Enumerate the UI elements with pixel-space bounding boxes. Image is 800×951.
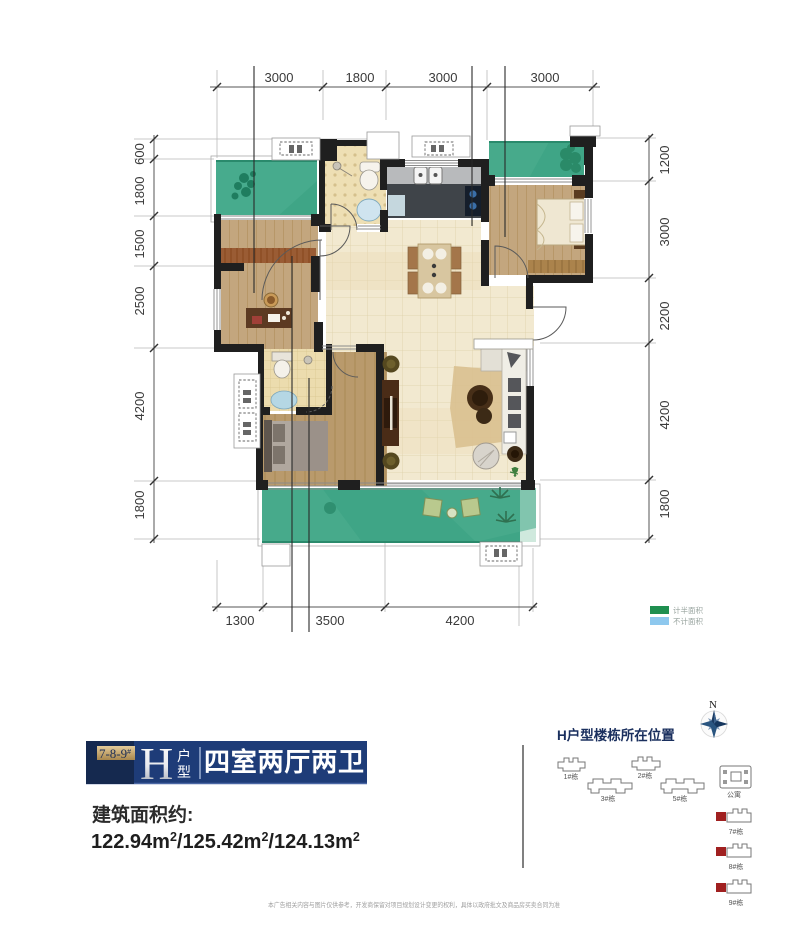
svg-text:本广告相关内容与图片仅供参考，开发商保留对项目规划设计变更的: 本广告相关内容与图片仅供参考，开发商保留对项目规划设计变更的权利，具体以政府批文…	[268, 900, 560, 909]
svg-text:8#栋: 8#栋	[729, 862, 744, 871]
svg-text:H户型楼栋所在位置: H户型楼栋所在位置	[557, 727, 675, 743]
svg-text:建筑面积约:: 建筑面积约:	[92, 803, 193, 826]
svg-text:四室两厅两卫: 四室两厅两卫	[204, 747, 365, 777]
svg-text:600: 600	[132, 143, 147, 165]
svg-text:1#栋: 1#栋	[564, 772, 579, 781]
svg-text:4200: 4200	[446, 613, 475, 628]
svg-text:不计面积: 不计面积	[673, 616, 703, 626]
svg-text:1800: 1800	[132, 491, 147, 520]
svg-text:4200: 4200	[132, 392, 147, 421]
svg-text:1800: 1800	[132, 177, 147, 206]
svg-text:7#栋: 7#栋	[729, 827, 744, 836]
svg-text:3000: 3000	[657, 218, 672, 247]
svg-text:公寓: 公寓	[727, 790, 741, 799]
svg-text:N: N	[709, 699, 717, 711]
svg-text:1500: 1500	[132, 230, 147, 259]
svg-text:3000: 3000	[531, 70, 560, 85]
svg-text:计半面积: 计半面积	[673, 605, 703, 615]
svg-text:9#栋: 9#栋	[729, 898, 744, 907]
svg-text:122.94m2/125.42m2/124.13m2: 122.94m2/125.42m2/124.13m2	[91, 830, 360, 853]
svg-text:7-8-9#: 7-8-9#	[99, 746, 131, 761]
svg-text:型: 型	[177, 765, 191, 781]
svg-text:H: H	[140, 738, 173, 789]
svg-text:2500: 2500	[132, 287, 147, 316]
svg-text:4200: 4200	[657, 401, 672, 430]
svg-text:户: 户	[177, 748, 191, 765]
svg-text:1300: 1300	[226, 613, 255, 628]
svg-text:2#栋: 2#栋	[638, 771, 653, 780]
svg-text:1200: 1200	[657, 146, 672, 175]
svg-text:2200: 2200	[657, 302, 672, 331]
svg-text:3000: 3000	[429, 70, 458, 85]
svg-text:3#栋: 3#栋	[601, 794, 616, 803]
svg-text:1800: 1800	[657, 490, 672, 519]
svg-text:3000: 3000	[265, 70, 294, 85]
svg-text:3500: 3500	[316, 613, 345, 628]
svg-text:1800: 1800	[346, 70, 375, 85]
svg-text:5#栋: 5#栋	[673, 794, 688, 803]
